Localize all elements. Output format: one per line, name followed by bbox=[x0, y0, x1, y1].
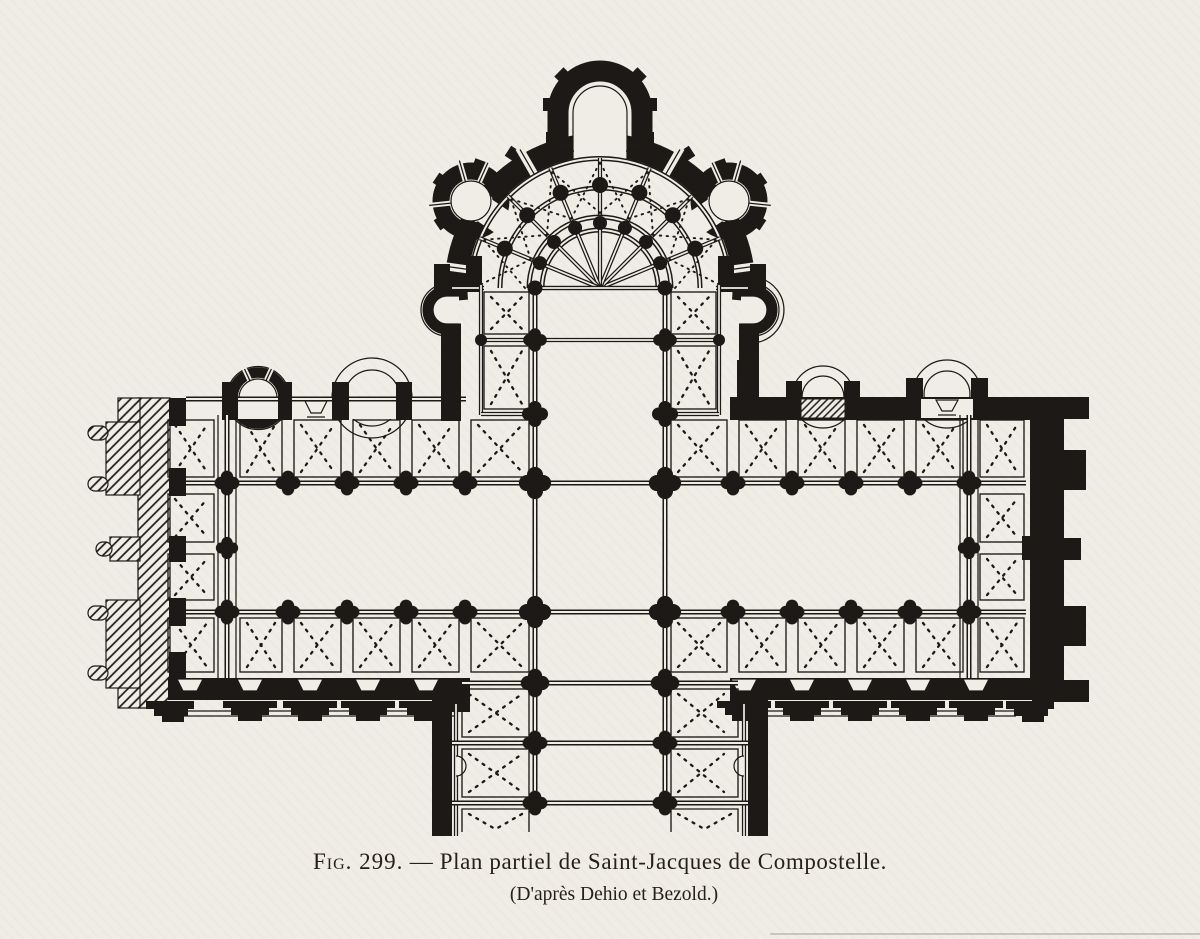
radiating-chapel-axial bbox=[543, 67, 657, 162]
crossing-pier-sw bbox=[519, 596, 551, 628]
transept-east-wall bbox=[1022, 397, 1089, 702]
floor-plan bbox=[0, 0, 1200, 939]
crossing-pier-ne bbox=[649, 467, 681, 499]
caption-title: Plan partiel de Saint-Jacques de Compost… bbox=[440, 849, 887, 874]
transept-west-wall bbox=[88, 398, 186, 708]
transept-vault-crosses bbox=[175, 425, 1017, 667]
caption-line-1: Fig. 299. — Plan partiel de Saint-Jacque… bbox=[0, 849, 1200, 875]
apse-chevet bbox=[421, 67, 784, 400]
crossing-pier-se bbox=[649, 596, 681, 628]
vault-fan bbox=[538, 226, 662, 288]
nave-wall-respond-east bbox=[734, 756, 744, 776]
scanned-book-page: Fig. 299. — Plan partiel de Saint-Jacque… bbox=[0, 0, 1200, 939]
figure-caption: Fig. 299. — Plan partiel de Saint-Jacque… bbox=[0, 849, 1200, 906]
nave-bays bbox=[462, 689, 738, 832]
transept-bays bbox=[168, 420, 1024, 672]
choir-aisle-bays bbox=[484, 292, 716, 409]
nave-wall-respond-west bbox=[456, 756, 466, 776]
caption-dash: — bbox=[410, 849, 434, 874]
transept bbox=[168, 415, 1026, 678]
figure-number: Fig. 299. bbox=[313, 849, 403, 874]
west-buttress-middle bbox=[96, 537, 140, 561]
scan-artifact-line bbox=[770, 933, 1200, 935]
crossing-pier-nw bbox=[519, 467, 551, 499]
caption-source: (D'après Dehio et Bezold.) bbox=[14, 884, 1200, 906]
west-buttress-lower bbox=[88, 600, 140, 688]
west-buttress-upper bbox=[88, 422, 140, 495]
north-chapels-right bbox=[730, 360, 1030, 428]
